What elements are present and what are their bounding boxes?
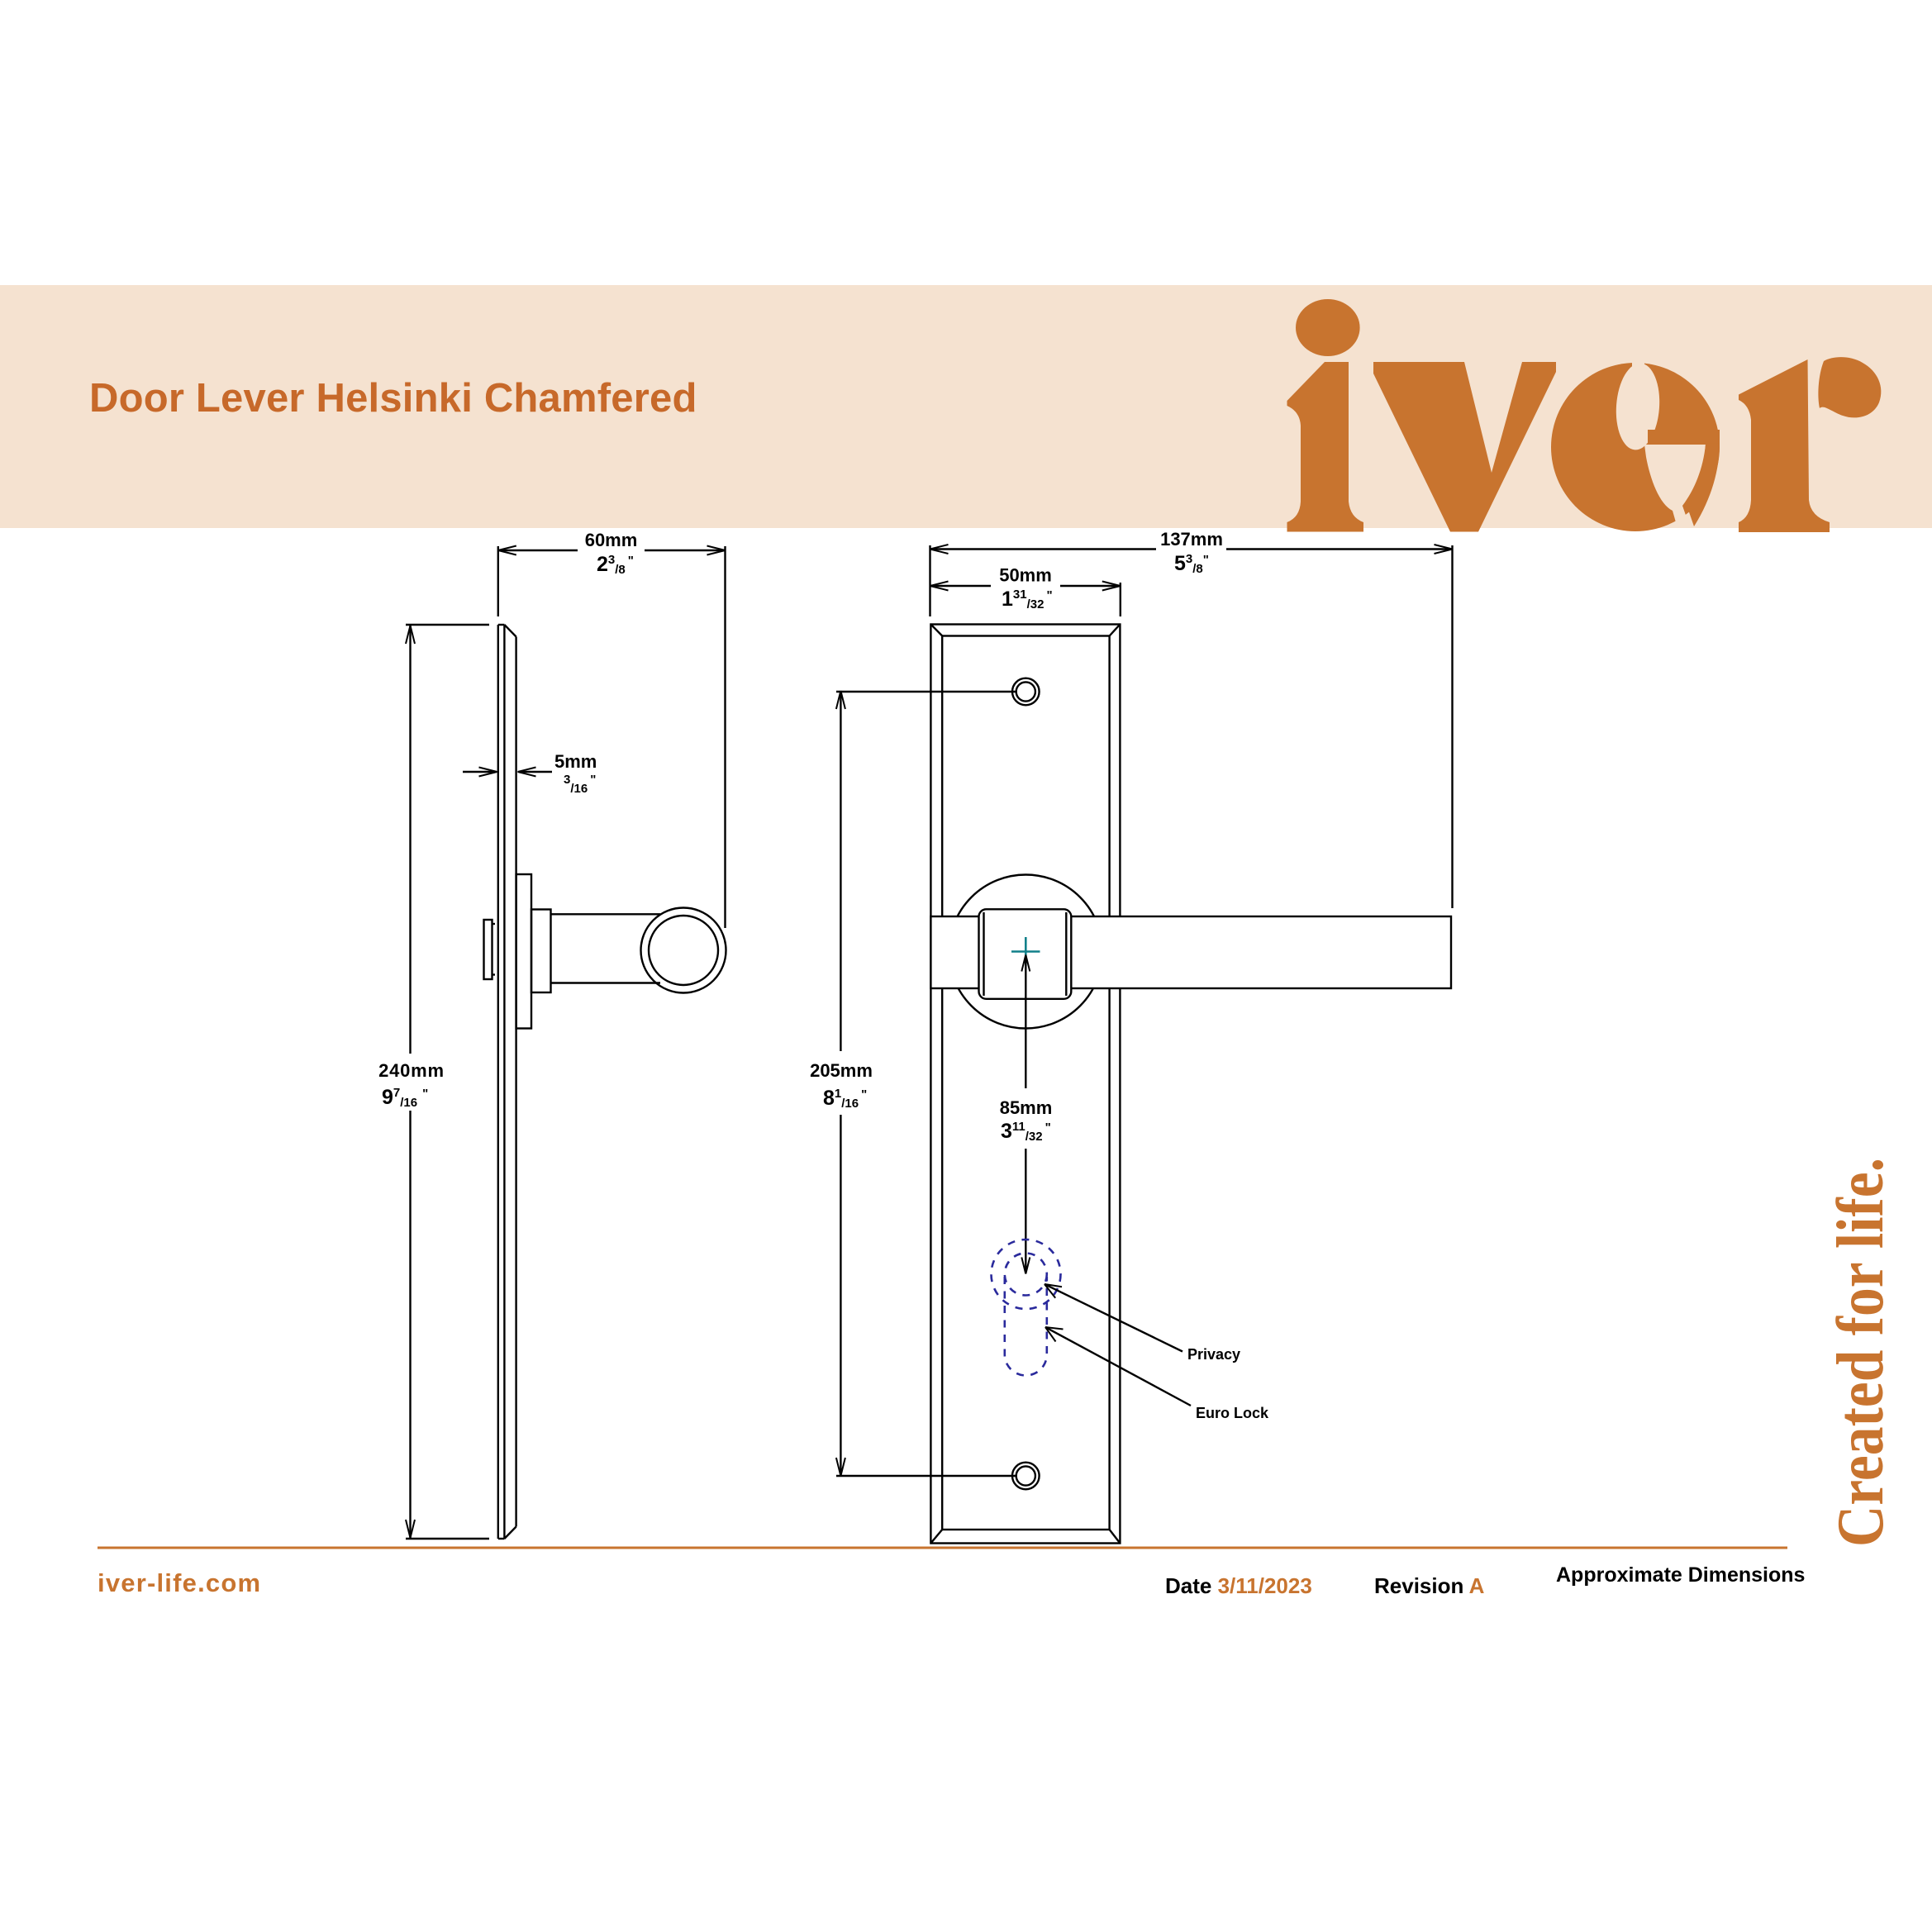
svg-text:Door Lever Helsinki Chamfered: Door Lever Helsinki Chamfered bbox=[89, 376, 697, 421]
svg-text:Approximate Dimensions: Approximate Dimensions bbox=[1556, 1563, 1805, 1587]
svg-text:205mm: 205mm bbox=[810, 1060, 873, 1081]
svg-text:iver-life.com: iver-life.com bbox=[98, 1568, 261, 1597]
svg-text:60mm: 60mm bbox=[585, 530, 638, 550]
svg-text:5mm: 5mm bbox=[554, 751, 597, 772]
svg-text:240mm: 240mm bbox=[378, 1060, 445, 1081]
svg-text:Revision A: Revision A bbox=[1374, 1573, 1485, 1598]
svg-text:85mm: 85mm bbox=[1000, 1097, 1053, 1118]
svg-text:137mm: 137mm bbox=[1160, 529, 1223, 550]
svg-text:Privacy: Privacy bbox=[1187, 1346, 1240, 1363]
svg-text:Date 3/11/2023: Date 3/11/2023 bbox=[1165, 1573, 1312, 1598]
svg-text:Euro Lock: Euro Lock bbox=[1196, 1405, 1269, 1421]
svg-text:Created for life.: Created for life. bbox=[1825, 1158, 1897, 1547]
svg-text:50mm: 50mm bbox=[999, 565, 1052, 586]
